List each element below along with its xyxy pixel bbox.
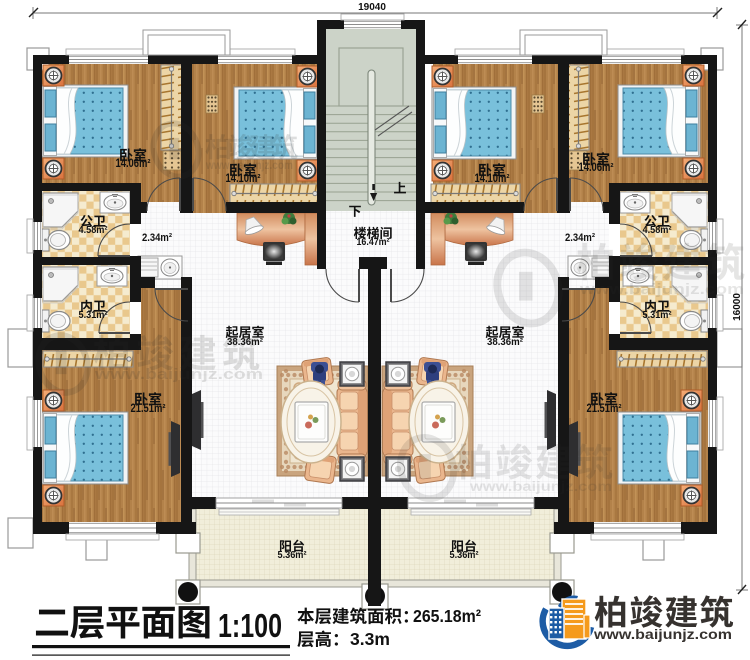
svg-text:14.10m²: 14.10m² <box>226 173 261 185</box>
svg-text:2.34m²: 2.34m² <box>142 232 172 244</box>
svg-text:5.36m²: 5.36m² <box>278 550 308 561</box>
svg-text:1:100: 1:100 <box>218 607 282 644</box>
svg-text:14.10m²: 14.10m² <box>475 173 510 185</box>
svg-text:3.3m: 3.3m <box>350 629 390 649</box>
svg-text:5.36m²: 5.36m² <box>450 550 480 561</box>
svg-text:16.47m²: 16.47m² <box>357 236 390 248</box>
svg-text:16000: 16000 <box>732 293 743 321</box>
svg-text:www.baijunjz.com: www.baijunjz.com <box>579 282 744 298</box>
svg-text:21.51m²: 21.51m² <box>587 403 622 415</box>
svg-text:14.06m²: 14.06m² <box>116 158 151 170</box>
svg-text:14.06m²: 14.06m² <box>579 162 614 174</box>
svg-text:4.58m²: 4.58m² <box>79 224 108 236</box>
svg-text:5.31m²: 5.31m² <box>79 309 108 321</box>
svg-text:www.baijunjz.com: www.baijunjz.com <box>205 158 293 172</box>
svg-text:19040: 19040 <box>358 2 386 13</box>
svg-text:2.34m²: 2.34m² <box>565 232 595 244</box>
svg-text:www.baijunjz.com: www.baijunjz.com <box>469 479 612 494</box>
svg-text:21.51m²: 21.51m² <box>131 403 166 415</box>
svg-text:38.36m²: 38.36m² <box>487 336 523 348</box>
svg-text:265.18m²: 265.18m² <box>413 606 481 626</box>
svg-text:www.baijunjz.com: www.baijunjz.com <box>593 627 732 642</box>
svg-text:www.baijunjz.com: www.baijunjz.com <box>94 367 263 383</box>
svg-text:5.31m²: 5.31m² <box>643 309 672 321</box>
svg-text:4.58m²: 4.58m² <box>643 224 672 236</box>
